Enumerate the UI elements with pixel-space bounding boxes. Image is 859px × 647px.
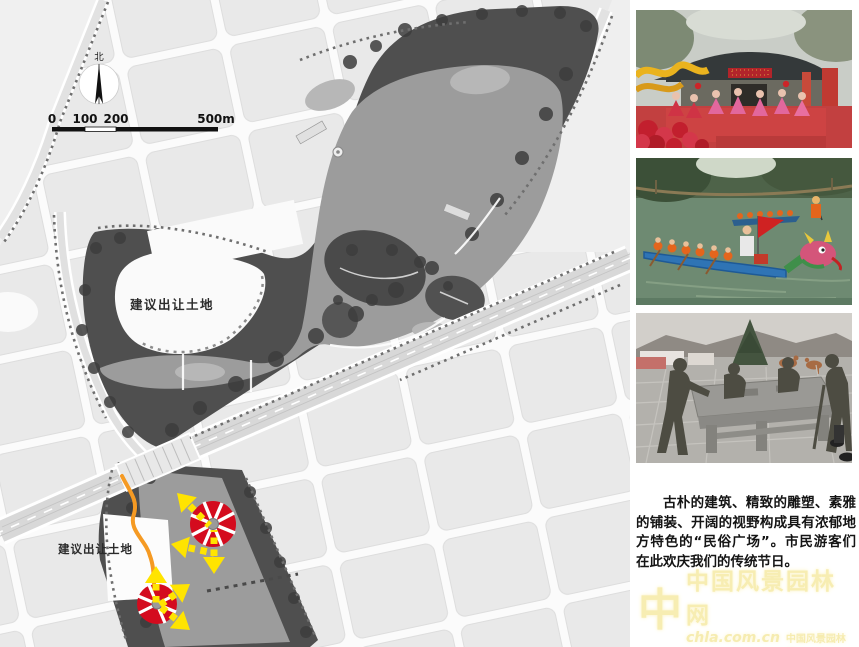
watermark-small-text: 中国风景园林网 <box>786 630 852 647</box>
plan-document-page: 北 0 100 200 500m 建议出让土地 建议出让土地 <box>0 0 859 647</box>
parcel-label-upper: 建议出让土地 <box>130 297 214 312</box>
scale-tick-200: 200 <box>103 112 128 126</box>
caption-paragraph: 古朴的建筑、精致的雕塑、素雅的铺装、开阔的视野构成具有浓郁地方特色的“民俗广场”… <box>636 494 856 572</box>
scale-tick-0: 0 <box>48 112 56 126</box>
north-label: 北 <box>94 52 104 63</box>
photo-dragon-boat <box>636 158 852 305</box>
watermark-title: 中国风景园林网 <box>686 562 852 630</box>
watermark-logo-icon: 中 <box>638 589 682 633</box>
site-plan-map: 北 0 100 200 500m 建议出让土地 建议出让土地 <box>0 0 630 647</box>
photo-sculptures <box>636 313 852 463</box>
parcel-label-lower: 建议出让土地 <box>58 542 133 556</box>
watermark: 中 中国风景园林网 chla.com.cn 中国风景园林网 <box>638 580 852 642</box>
watermark-url: chla.com.cn <box>686 630 780 646</box>
scale-tick-500: 500m <box>197 112 235 126</box>
scale-tick-100: 100 <box>72 112 97 126</box>
photo-festival <box>636 10 852 148</box>
site-plan-drawing: 北 0 100 200 500m 建议出让土地 建议出让土地 <box>0 0 630 647</box>
